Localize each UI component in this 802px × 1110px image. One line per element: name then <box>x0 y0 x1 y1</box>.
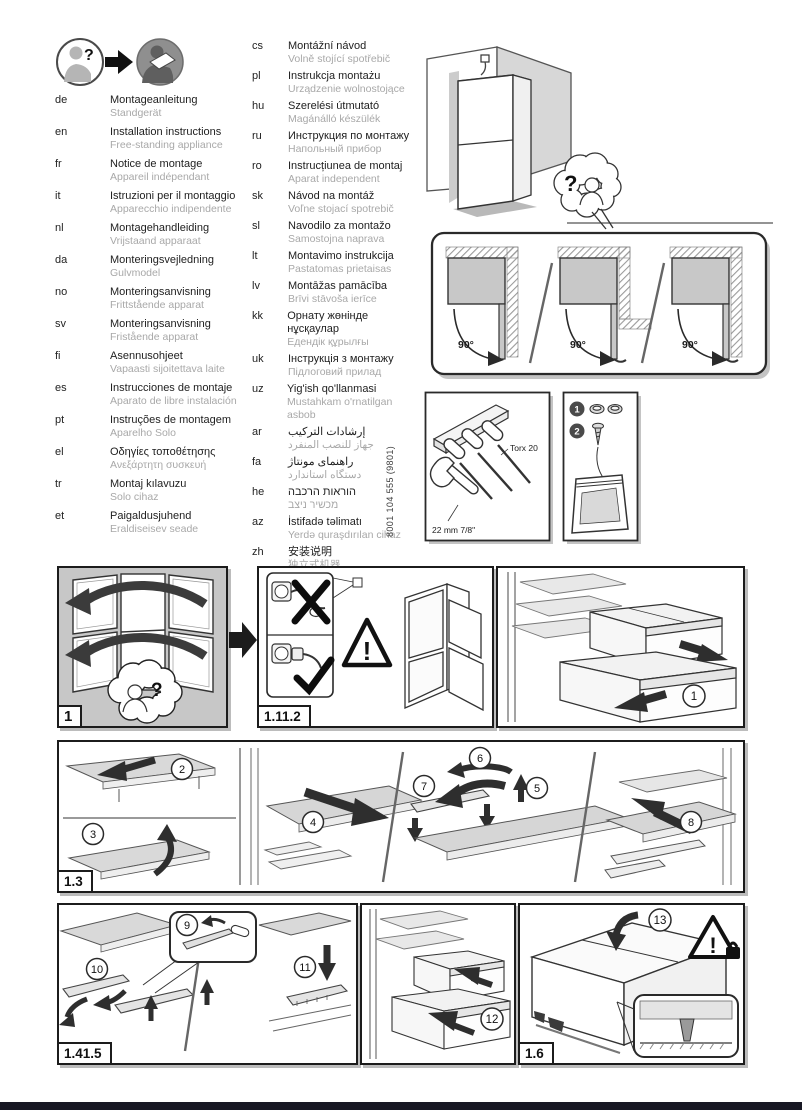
angle-label: 90° <box>682 339 698 351</box>
svg-text:3: 3 <box>90 829 96 841</box>
step-badge: 6 <box>470 748 491 769</box>
step-badge: 13 <box>649 909 671 931</box>
panel-label: 1 <box>59 705 82 726</box>
rail-bar <box>63 975 193 1013</box>
language-code: da <box>55 254 110 267</box>
language-subtitle: Aparato de libre instalación <box>110 395 237 408</box>
language-code: fa <box>252 456 288 469</box>
page-bottom-rule <box>0 1102 802 1110</box>
language-entry: de Montageanleitung Standgerät <box>55 94 250 120</box>
panel-label: 1.3 <box>59 870 93 891</box>
language-title: Montagehandleiding <box>110 222 209 235</box>
language-title: İstifadə təlimatı <box>288 516 401 529</box>
panel-insert-drawers: 12 <box>360 903 516 1065</box>
language-subtitle: Aparelho Solo <box>110 427 231 440</box>
language-entry: pt Instruções de montagem Aparelho Solo <box>55 414 250 440</box>
language-code: et <box>55 510 110 523</box>
question-mark: ? <box>84 47 94 64</box>
language-code: cs <box>252 40 288 53</box>
part-number: 1 <box>574 405 580 416</box>
language-title: Monteringsanvisning <box>110 286 211 299</box>
language-entry: sk Návod na montáž Voľne stojací spotreb… <box>252 190 420 216</box>
manual-page: ? de Montageanleitung Standgerät en Inst… <box>0 0 802 1110</box>
step-badge: 7 <box>414 776 435 797</box>
panel-lay-down-warning: 13 ! <box>518 903 745 1065</box>
parts-bag-icon <box>572 475 628 533</box>
read-manual-pictogram: ? <box>55 36 187 90</box>
language-subtitle: Aparat independent <box>288 173 402 186</box>
language-subtitle: Brīvi stāvoša ierīce <box>288 293 387 306</box>
fridge-side <box>513 75 531 201</box>
language-entry: tr Montaj kılavuzu Solo cihaz <box>55 478 250 504</box>
torx-label: Torx 20 <box>510 443 538 453</box>
language-title: Instruções de montagem <box>110 414 231 427</box>
step-badge: 11 <box>295 957 316 978</box>
language-code: de <box>55 94 110 107</box>
language-entry: no Monteringsanvisning Frittstående appa… <box>55 286 250 312</box>
language-subtitle: Yerdə quraşdırılan cihaz <box>288 529 401 542</box>
language-code: az <box>252 516 288 529</box>
language-subtitle: جهاز للنصب المنفرد <box>288 439 374 452</box>
language-code: sv <box>55 318 110 331</box>
language-code: pt <box>55 414 110 427</box>
language-title: Montážní návod <box>288 40 390 53</box>
step-badge: 3 <box>83 824 104 845</box>
language-entry: nl Montagehandleiding Vrijstaand apparaa… <box>55 222 250 248</box>
language-subtitle: Voľne stojací spotrebič <box>288 203 394 216</box>
power-plug <box>481 55 489 62</box>
language-code: pl <box>252 70 288 83</box>
language-title: Paigaldusjuhend <box>110 510 198 523</box>
step-badge: 2 <box>172 759 193 780</box>
language-code: lv <box>252 280 288 293</box>
language-subtitle: Pastatomas prietaisas <box>288 263 394 276</box>
language-code: no <box>55 286 110 299</box>
language-entry: lv Montāžas pamācība Brīvi stāvoša ierīc… <box>252 280 420 306</box>
language-subtitle: دستگاه استاندارد <box>288 469 361 482</box>
panel-unplug-warning: ! 1.11.2 <box>257 566 494 728</box>
document-number: 8001 104 555 (9801) <box>385 437 395 537</box>
language-entry: da Monteringsvejledning Gulvmodel <box>55 254 250 280</box>
language-entry: en Installation instructions Free-standi… <box>55 126 250 152</box>
door-reversal-scene: ? <box>59 568 226 726</box>
language-subtitle: Ανεξάρτητη συσκευή <box>110 459 215 472</box>
part-number: 2 <box>574 427 579 438</box>
svg-text:8: 8 <box>688 817 694 829</box>
language-entry: kk Орнату жөнінде нұсқаулар Едендік құры… <box>252 310 420 349</box>
language-entry: fr Notice de montage Appareil indépendan… <box>55 158 250 184</box>
language-code: sl <box>252 220 288 233</box>
svg-text:12: 12 <box>486 1014 499 1026</box>
language-entry: ro Instrucțiunea de montaj Aparat indepe… <box>252 160 420 186</box>
person-head <box>70 47 83 60</box>
panel-label: 1.6 <box>520 1042 554 1063</box>
panel-label: 1.11.2 <box>259 705 311 726</box>
question-mark: ? <box>151 680 163 701</box>
language-entry: uz Yig'ish qo'llanmasi Mustahkam o'rnati… <box>252 383 420 422</box>
parts-panel: 1 2 <box>562 391 644 547</box>
thinker-head <box>585 178 599 192</box>
language-subtitle: Frittstående apparat <box>110 299 211 312</box>
language-code: es <box>55 382 110 395</box>
language-code: tr <box>55 478 110 491</box>
language-code: he <box>252 486 288 499</box>
language-title: Installation instructions <box>110 126 223 139</box>
language-title: إرشادات التركيب <box>288 426 374 439</box>
language-title: Οδηγίες τοποθέτησης <box>110 446 215 459</box>
language-title: Інструкція з монтажу <box>288 353 394 366</box>
language-subtitle: Vapaasti sijoitettava laite <box>110 363 225 376</box>
language-subtitle: מכשיר ניצב <box>288 499 356 512</box>
step-badge: 12 <box>481 1008 503 1030</box>
language-title: Montaj kılavuzu <box>110 478 186 491</box>
language-code: fr <box>55 158 110 171</box>
fridge-corner-illustration: ? <box>425 33 775 231</box>
language-title: Инструкция по монтажу <box>288 130 409 143</box>
exclamation-mark: ! <box>709 933 716 958</box>
language-code: it <box>55 190 110 203</box>
open-door <box>723 304 729 359</box>
language-subtitle: Free-standing appliance <box>110 139 223 152</box>
language-code: nl <box>55 222 110 235</box>
swing-arrow <box>67 999 87 1017</box>
unplug-warning-scene: ! <box>259 568 492 726</box>
svg-text:10: 10 <box>91 964 103 976</box>
language-subtitle: Vrijstaand apparaat <box>110 235 209 248</box>
language-title: Asennusohjeet <box>110 350 225 363</box>
language-entry: cs Montážní návod Volně stojící spotřebi… <box>252 40 420 66</box>
exclamation-mark: ! <box>363 636 372 666</box>
language-subtitle: Samostojna naprava <box>288 233 391 246</box>
svg-text:11: 11 <box>299 962 310 974</box>
tools-panel: Torx 20 22 mm 7/8" <box>424 391 556 547</box>
panel-shelf-removal: 2 3 4 <box>57 740 745 893</box>
language-code: zh <box>252 546 288 559</box>
language-title: Návod na montáž <box>288 190 394 203</box>
language-title: Notice de montage <box>110 158 209 171</box>
svg-text:7: 7 <box>421 781 427 793</box>
panel-label: 1.41.5 <box>59 1042 112 1063</box>
language-entry: sl Navodilo za montažo Samostojna naprav… <box>252 220 420 246</box>
language-subtitle: Eraldiseisev seade <box>110 523 198 536</box>
step-badge: 10 <box>87 959 108 980</box>
language-code: ru <box>252 130 288 143</box>
language-code: ro <box>252 160 288 173</box>
empty-fridge-icon <box>405 584 483 710</box>
open-door <box>611 304 617 359</box>
step-badge: 5 <box>527 778 548 799</box>
language-code: uk <box>252 353 288 366</box>
language-title: Monteringsvejledning <box>110 254 214 267</box>
language-subtitle: Едендік құрылғы <box>287 336 420 349</box>
svg-text:4: 4 <box>310 817 316 829</box>
language-subtitle: Solo cihaz <box>110 491 186 504</box>
language-entry: sv Monteringsanvisning Fristående appara… <box>55 318 250 344</box>
language-title: Szerelési útmutató <box>288 100 380 113</box>
open-door <box>499 304 505 359</box>
language-list-left: de Montageanleitung Standgerät en Instal… <box>55 94 250 536</box>
step-badge: 1 <box>683 685 705 707</box>
angle-label: 90° <box>458 339 474 351</box>
language-code: ar <box>252 426 288 439</box>
svg-text:13: 13 <box>654 915 667 927</box>
insert-drawers-scene: 12 <box>362 905 514 1063</box>
angle-label: 90° <box>570 339 586 351</box>
language-entry: it Istruzioni per il montaggio Apparecch… <box>55 190 250 216</box>
step-badge: 8 <box>681 812 702 833</box>
language-subtitle: Напольный прибор <box>288 143 409 156</box>
language-title: Montageanleitung <box>110 94 197 107</box>
language-subtitle: Magánálló készülék <box>288 113 380 126</box>
language-code: hu <box>252 100 288 113</box>
door-clearance-panel: 90° 90° 90° <box>430 231 775 383</box>
arrow-right-icon <box>105 50 133 74</box>
language-title: Navodilo za montažo <box>288 220 391 233</box>
language-title: Istruzioni per il montaggio <box>110 190 235 203</box>
language-code: kk <box>252 310 287 323</box>
language-code: el <box>55 446 110 459</box>
language-subtitle: Підлоговий прилад <box>288 366 394 379</box>
language-entry: lt Montavimo instrukcija Pastatomas prie… <box>252 250 420 276</box>
foot-detail-callout <box>617 995 738 1057</box>
language-entry: es Instrucciones de montaje Aparato de l… <box>55 382 250 408</box>
lower-drawer <box>560 652 736 722</box>
svg-text:5: 5 <box>534 783 540 795</box>
shelf-removal-scene: 2 3 4 <box>59 742 743 891</box>
rail-mounting-scene: 10 9 11 <box>59 905 356 1063</box>
language-subtitle: Gulvmodel <box>110 267 214 280</box>
language-code: lt <box>252 250 288 263</box>
language-entry: el Οδηγίες τοποθέτησης Ανεξάρτητη συσκευ… <box>55 446 250 472</box>
remove-drawers-scene: 1 <box>498 568 743 726</box>
socket-glyph <box>353 578 362 587</box>
language-title: Montavimo instrukcija <box>288 250 394 263</box>
step-badge: 4 <box>303 812 324 833</box>
language-code: sk <box>252 190 288 203</box>
language-entry: uk Інструкція з монтажу Підлоговий прила… <box>252 353 420 379</box>
language-title: Yig'ish qo'llanmasi <box>287 383 420 396</box>
language-subtitle: Fristående apparat <box>110 331 211 344</box>
language-title: Орнату жөнінде нұсқаулар <box>287 310 420 336</box>
language-title: 安装说明 <box>288 546 341 559</box>
panel-rail-mounting: 10 9 11 <box>57 903 358 1065</box>
lay-down-scene: 13 ! <box>520 905 743 1063</box>
language-title: Montāžas pamācība <box>288 280 387 293</box>
language-entry: pl Instrukcja montażu Urządzenie wolnost… <box>252 70 420 96</box>
language-subtitle: Standgerät <box>110 107 197 120</box>
wrench-label: 22 mm 7/8" <box>432 525 475 535</box>
svg-text:2: 2 <box>179 764 185 776</box>
language-entry: ru Инструкция по монтажу Напольный прибо… <box>252 130 420 156</box>
language-subtitle: Apparecchio indipendente <box>110 203 235 216</box>
panel-door-reversal: ? 1 <box>57 566 228 728</box>
language-entry: et Paigaldusjuhend Eraldiseisev seade <box>55 510 250 536</box>
language-subtitle: Appareil indépendant <box>110 171 209 184</box>
svg-text:6: 6 <box>477 753 483 765</box>
language-code: fi <box>55 350 110 363</box>
language-subtitle: Mustahkam o'rnatilgan asbob <box>287 396 420 422</box>
warning-triangle-icon: ! <box>344 620 390 666</box>
language-title: راهنمای مونتاژ <box>288 456 361 469</box>
svg-text:9: 9 <box>184 920 190 932</box>
language-title: Instrucțiunea de montaj <box>288 160 402 173</box>
language-title: הוראות הרכבה <box>288 486 356 499</box>
language-subtitle: Urządzenie wolnostojące <box>288 83 405 96</box>
language-code: uz <box>252 383 287 396</box>
language-title: Monteringsanvisning <box>110 318 211 331</box>
language-title: Instrucciones de montaje <box>110 382 237 395</box>
step-number: 1 <box>691 691 697 703</box>
language-code: en <box>55 126 110 139</box>
language-entry: fi Asennusohjeet Vapaasti sijoitettava l… <box>55 350 250 376</box>
step-badge: 9 <box>177 915 198 936</box>
language-title: Instrukcja montażu <box>288 70 405 83</box>
panel-remove-drawers: 1 <box>496 566 745 728</box>
next-step-arrow <box>229 622 257 658</box>
language-entry: hu Szerelési útmutató Magánálló készülék <box>252 100 420 126</box>
language-subtitle: Volně stojící spotřebič <box>288 53 390 66</box>
question-mark: ? <box>564 171 577 196</box>
